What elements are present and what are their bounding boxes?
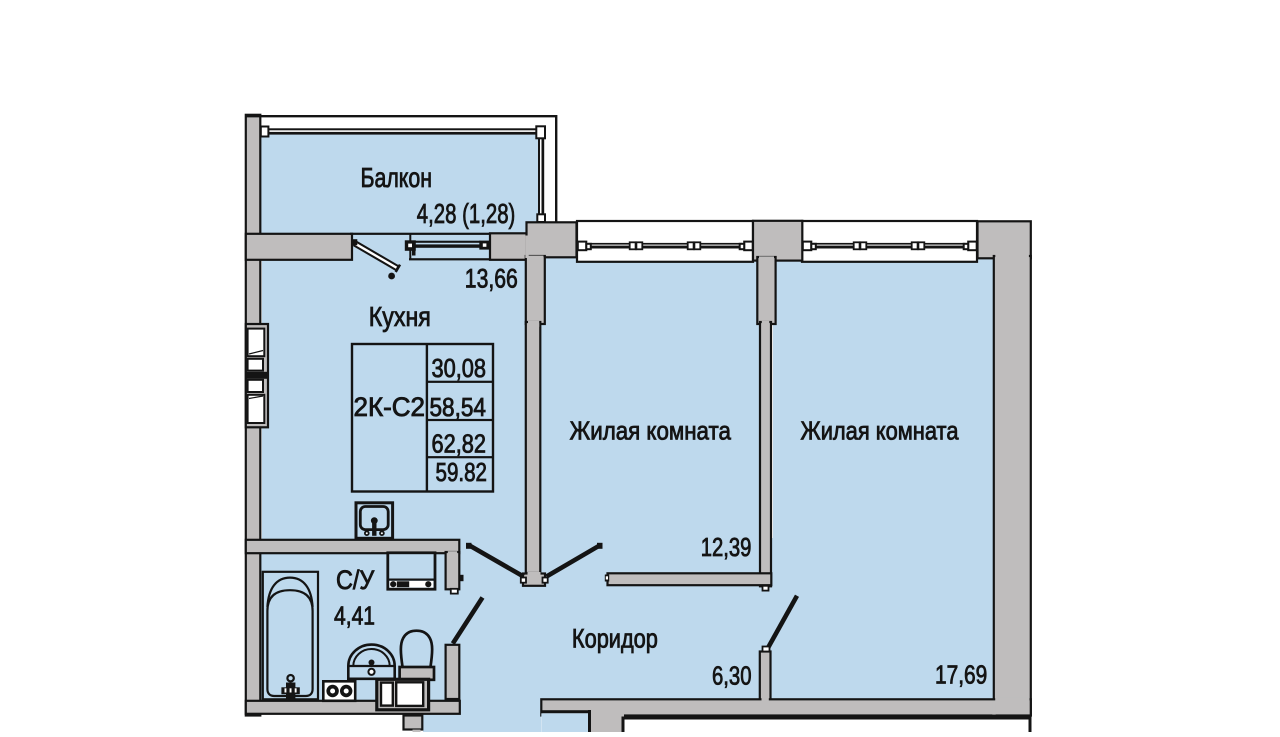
svg-text:6,30: 6,30 [712,661,752,691]
svg-text:Жилая комната: Жилая комната [801,416,959,446]
svg-text:Жилая комната: Жилая комната [570,416,732,446]
svg-text:62,82: 62,82 [432,429,487,459]
svg-text:4,41: 4,41 [334,601,375,631]
svg-text:С/У: С/У [336,565,375,595]
svg-text:4,28 (1,28): 4,28 (1,28) [417,198,516,229]
svg-text:58,54: 58,54 [430,392,487,422]
svg-text:30,08: 30,08 [432,353,487,383]
svg-text:2К-С2: 2К-С2 [354,392,426,422]
svg-text:Балкон: Балкон [361,162,433,193]
svg-text:Кухня: Кухня [369,301,431,332]
svg-text:13,66: 13,66 [465,263,518,293]
svg-text:59.82: 59.82 [436,457,488,487]
svg-text:Коридор: Коридор [572,624,658,654]
svg-text:17,69: 17,69 [935,660,987,690]
svg-text:12,39: 12,39 [701,532,752,562]
